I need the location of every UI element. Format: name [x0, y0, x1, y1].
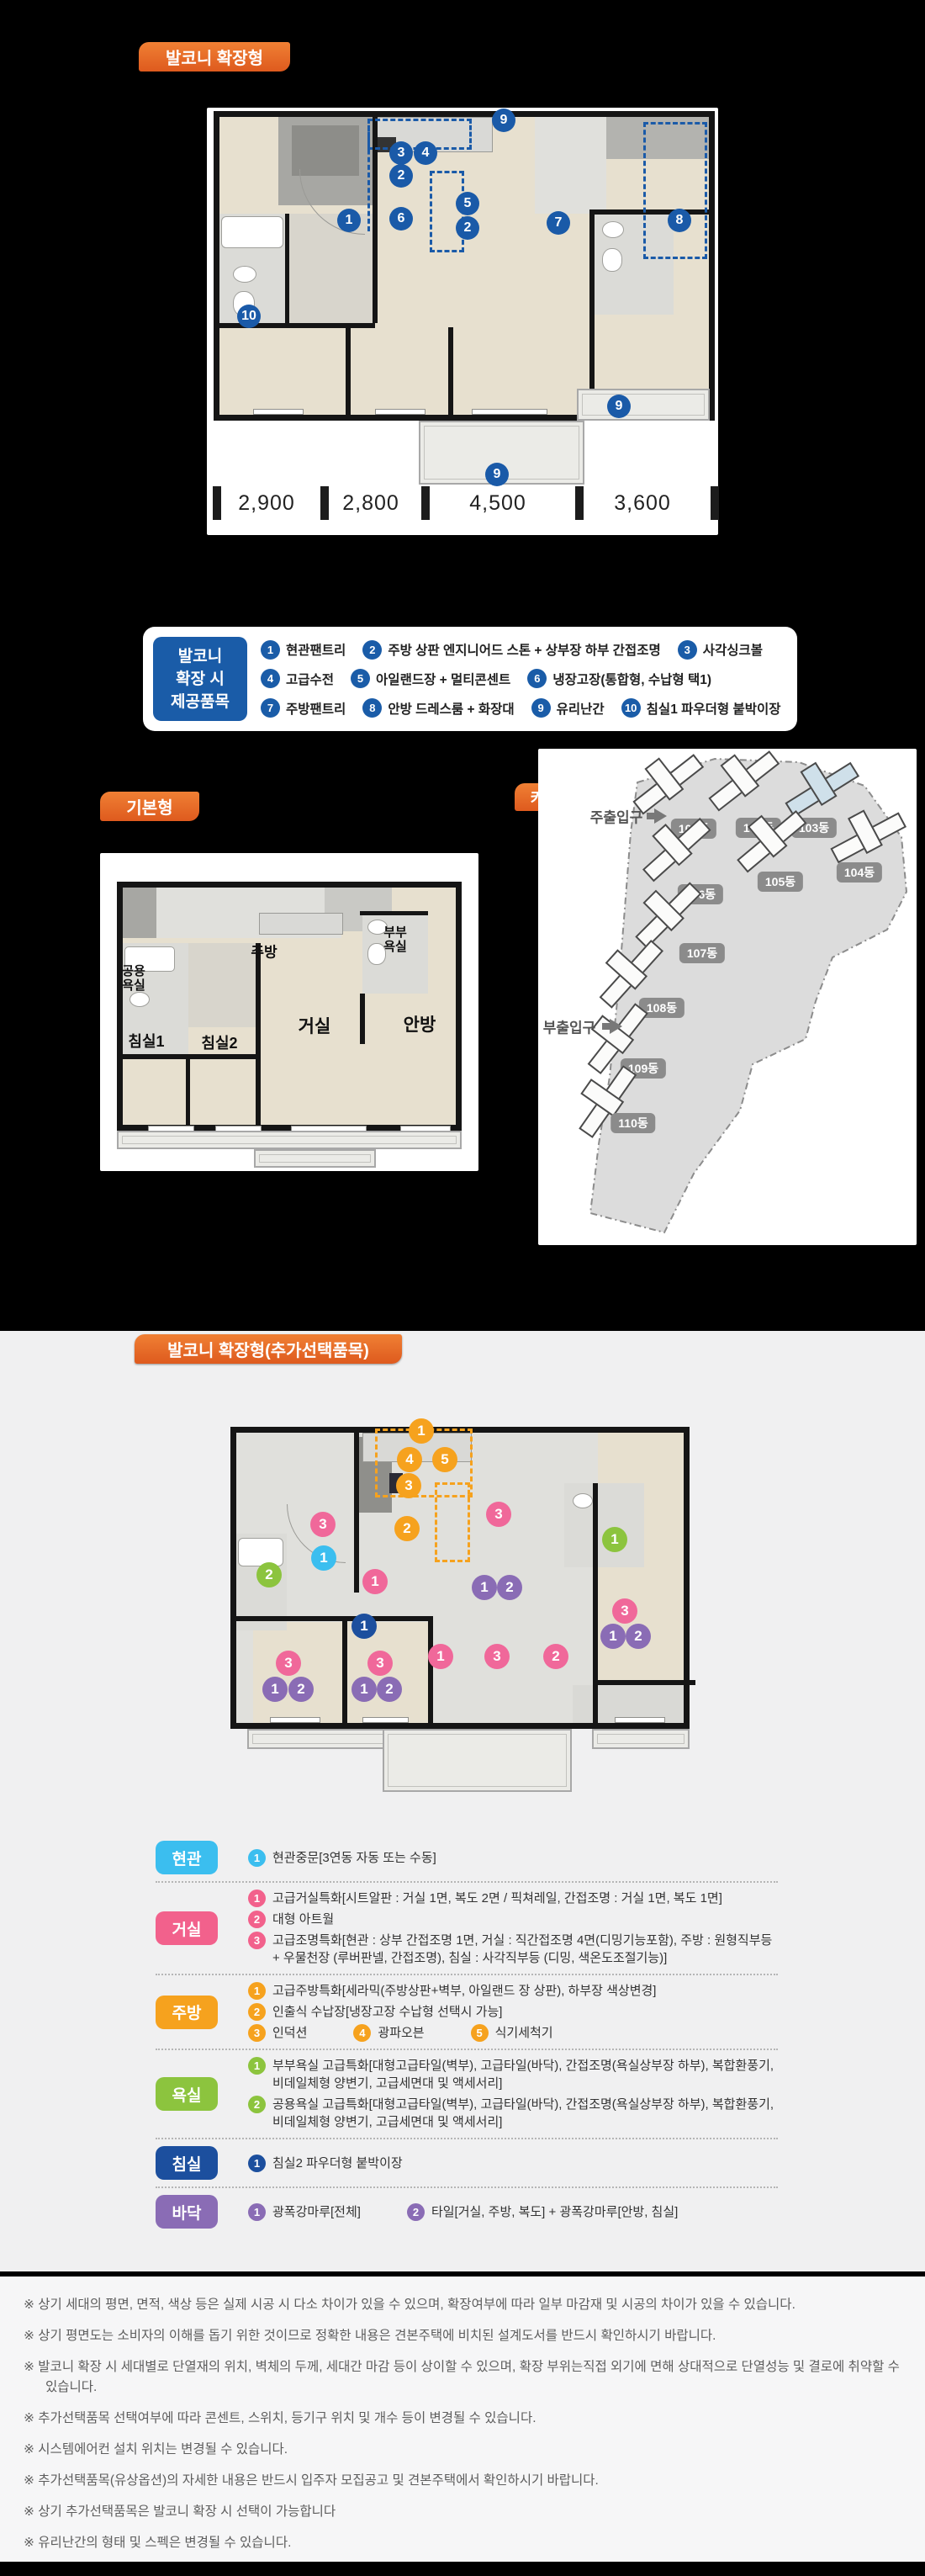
disclaimer-line: ※ 유리난간의 형태 및 스펙은 변경될 수 있습니다. — [24, 2533, 906, 2553]
item-number-icon: 1 — [248, 1890, 266, 1907]
room-label-line: 안방 — [404, 1015, 436, 1036]
provided-item: 6냉장고장(통합형, 수납형 택1) — [527, 669, 711, 688]
legend-item: 1침실2 파우더형 붙박이장 — [248, 2155, 403, 2172]
room-label-line: 침실2 — [201, 1035, 237, 1052]
plan1-outline — [214, 111, 715, 421]
wall — [360, 994, 365, 1044]
plan3-marker-3: 3 — [396, 1473, 421, 1498]
keymap-building-label: 105동 — [758, 872, 803, 892]
legend-item-label: 현관중문[3연동 자동 또는 수동] — [272, 1849, 436, 1867]
dimension-value: 3,600 — [614, 491, 671, 516]
dimension-tick — [711, 486, 719, 520]
provided-item: 9유리난간 — [531, 698, 605, 718]
room-label-line: 부부 — [383, 926, 407, 941]
provided-items-row: 1현관팬트리2주방 상판 엔지니어드 스톤 + 상부장 하부 간접조명3사각싱크… — [261, 640, 787, 660]
plan3-marker-5: 5 — [432, 1447, 457, 1472]
wall — [285, 214, 289, 323]
plan1-marker-4: 4 — [414, 141, 437, 165]
dimension-tick — [575, 486, 584, 520]
item-number-icon: 1 — [248, 2155, 266, 2172]
provided-item-label: 안방 드레스룸 + 화장대 — [388, 699, 514, 718]
provided-item: 8안방 드레스룸 + 화장대 — [362, 698, 514, 718]
badge-options-label: 발코니 확장형(추가선택품목) — [167, 1337, 369, 1361]
keymap-entrance-label: 부출입구 — [543, 1016, 596, 1037]
legend-category-badge: 현관 — [156, 1841, 218, 1874]
plan1-marker-8: 8 — [668, 209, 691, 232]
legend-items: 1현관중문[3연동 자동 또는 수동] — [248, 1849, 778, 1867]
sink-icon — [129, 992, 150, 1007]
plan1-marker-10: 10 — [237, 305, 261, 328]
plan3-marker-3: 3 — [612, 1598, 637, 1624]
plan1-marker-5: 5 — [456, 192, 479, 215]
plan3-marker-3: 3 — [276, 1651, 301, 1676]
room-label-line: 공용 — [122, 965, 145, 979]
plan1-marker-2: 2 — [389, 164, 413, 188]
plan3-marker-2: 2 — [543, 1644, 568, 1669]
disclaimer-line: ※ 추가선택품목 선택여부에 따라 콘센트, 스위치, 등기구 위치 및 개수 … — [24, 2409, 906, 2429]
provided-item-label: 냉장고장(통합형, 수납형 택1) — [552, 670, 711, 688]
item-number-icon: 2 — [248, 1911, 266, 1928]
floorplan-expanded: 93425216781099 2,9002,8004,5003,600 — [207, 108, 718, 535]
legend-item: 2타일[거실, 주방, 복도] + 광폭강마루[안방, 침실] — [407, 2203, 678, 2221]
legend-category-badge: 욕실 — [156, 2077, 218, 2111]
legend-item: 4광파오븐 — [353, 2024, 424, 2042]
corridor-tile — [535, 117, 606, 214]
bedroom1-floor — [253, 1622, 346, 1723]
wall — [236, 1616, 431, 1621]
item-number-icon: 5 — [471, 2024, 489, 2042]
wall — [346, 327, 351, 415]
legend-items: 1침실2 파우더형 붙박이장 — [248, 2155, 778, 2172]
expansion-line — [367, 119, 370, 231]
window — [253, 409, 304, 415]
plan3-marker-1: 1 — [262, 1677, 288, 1702]
keymap-building-label: 110동 — [610, 1113, 655, 1133]
room-label: 침실1 — [128, 1033, 164, 1050]
legend-item-label: 인덕션 — [272, 2024, 307, 2042]
provided-item: 2주방 상판 엔지니어드 스톤 + 상부장 하부 간접조명 — [362, 640, 660, 660]
item-number-icon: 5 — [351, 669, 370, 688]
legend-item-label: 고급거실특화[시트알판 : 거실 1면, 복도 2면 / 픽쳐레일, 간접조명 … — [272, 1890, 722, 1907]
legend-item: 3고급조명특화[현관 : 상부 간접조명 1면, 거실 : 직간접조명 4면(디… — [248, 1932, 778, 1967]
item-number-icon: 4 — [261, 669, 280, 688]
provided-items-title-line: 발코니 — [178, 645, 222, 668]
plan1-marker-9: 9 — [492, 109, 515, 132]
master-bedroom-floor — [598, 1559, 684, 1687]
disclaimer-line: ※ 상기 평면도는 소비자의 이해를 돕기 위한 것이므로 정확한 내용은 견본… — [24, 2326, 906, 2346]
badge-options: 발코니 확장형(추가선택품목) — [135, 1334, 402, 1364]
wall — [448, 327, 453, 415]
window — [472, 409, 547, 415]
floorplan-options: 14532121313333132112121212 — [230, 1427, 690, 1797]
item-number-icon: 6 — [527, 669, 547, 688]
legend-item-row: 1광폭강마루[전체]2타일[거실, 주방, 복도] + 광폭강마루[안방, 침실… — [248, 2203, 778, 2221]
toilet-icon — [602, 248, 622, 272]
legend-group-거실: 거실1고급거실특화[시트알판 : 거실 1면, 복도 2면 / 픽쳐레일, 간접… — [156, 1881, 778, 1974]
balcony-south — [383, 1729, 572, 1792]
legend-item-row: 3인덕션4광파오븐5식기세척기 — [248, 2024, 778, 2042]
legend-item-label: 광파오븐 — [378, 2024, 424, 2042]
plan3-marker-3: 3 — [367, 1651, 393, 1676]
badge-balcony-expanded: 발코니 확장형 — [139, 42, 290, 72]
plan3-marker-1: 1 — [409, 1418, 434, 1444]
option-zone-island — [435, 1482, 470, 1562]
legend-item-label: 타일[거실, 주방, 복도] + 광폭강마루[안방, 침실] — [431, 2203, 678, 2221]
legend-item: 5식기세척기 — [471, 2024, 553, 2042]
provided-items-row: 7주방팬트리8안방 드레스룸 + 화장대9유리난간10침실1 파우더형 붙박이장 — [261, 698, 787, 718]
badge-balcony-expanded-label: 발코니 확장형 — [166, 45, 263, 69]
wall — [186, 1054, 190, 1132]
legend-item: 1부부욕실 고급특화[대형고급타일(벽부), 고급타일(바닥), 간접조명(욕실… — [248, 2057, 778, 2092]
disclaimer-line: ※ 상기 추가선택품목은 발코니 확장 시 선택이 가능합니다 — [24, 2502, 906, 2522]
legend-group-현관: 현관1현관중문[3연동 자동 또는 수동] — [156, 1834, 778, 1881]
room-label-line: 욕실 — [122, 979, 145, 994]
item-number-icon: 7 — [261, 698, 280, 718]
legend-item-label: 광폭강마루[전체] — [272, 2203, 361, 2221]
window — [375, 409, 425, 415]
badge-basic: 기본형 — [100, 792, 199, 821]
plan3-marker-2: 2 — [377, 1677, 402, 1702]
item-number-icon: 10 — [621, 698, 641, 718]
bathtub-icon — [221, 216, 283, 248]
kitchen-counter — [259, 913, 343, 935]
arrow-right-icon — [610, 1019, 622, 1034]
keymap-box: 101동102동103동104동105동106동107동108동109동110동… — [538, 749, 917, 1245]
dimension-tick — [421, 486, 430, 520]
legend-group-주방: 주방1고급주방특화[세라믹(주방상판+벽부, 아일랜드 장 상판), 하부장 색… — [156, 1974, 778, 2049]
legend-item-row: 2대형 아트월 — [248, 1911, 778, 1928]
provided-items-title: 발코니확장 시제공품목 — [153, 637, 247, 721]
plan3-marker-2: 2 — [497, 1575, 522, 1600]
plan1-marker-2: 2 — [456, 216, 479, 240]
plan3-marker-4: 4 — [397, 1447, 422, 1472]
dimension-tick — [320, 486, 329, 520]
sink-icon — [573, 1493, 593, 1508]
floorplan-basic: 공용욕실주방부부욕실침실1침실2거실안방 — [100, 853, 478, 1171]
provided-item-label: 사각싱크볼 — [703, 640, 763, 659]
plan3-marker-1: 1 — [311, 1545, 336, 1571]
provided-item: 3사각싱크볼 — [678, 640, 763, 660]
item-number-icon: 8 — [362, 698, 382, 718]
plan1-marker-6: 6 — [389, 207, 413, 231]
item-number-icon: 1 — [261, 640, 280, 660]
legend-items: 1광폭강마루[전체]2타일[거실, 주방, 복도] + 광폭강마루[안방, 침실… — [248, 2203, 778, 2221]
provided-items-list: 1현관팬트리2주방 상판 엔지니어드 스톤 + 상부장 하부 간접조명3사각싱크… — [261, 635, 787, 723]
provided-items-title-line: 확장 시 — [176, 668, 225, 691]
item-number-icon: 3 — [678, 640, 697, 660]
disclaimer-line: ※ 발코니 확장 시 세대별로 단열재의 위치, 벽체의 두께, 세대간 마감 … — [24, 2357, 906, 2398]
balcony-strip — [117, 1131, 462, 1149]
provided-item-label: 현관팬트리 — [286, 640, 346, 659]
legend-category-badge: 거실 — [156, 1911, 218, 1945]
legend-category-badge: 주방 — [156, 1996, 218, 2029]
item-number-icon: 9 — [531, 698, 551, 718]
keymap-building-label: 107동 — [679, 943, 725, 963]
legend-item-label: 공용욕실 고급특화[대형고급타일(벽부), 고급타일(바닥), 간접조명(욕실상… — [272, 2096, 778, 2131]
plan1-marker-9: 9 — [607, 395, 631, 418]
legend-item: 1현관중문[3연동 자동 또는 수동] — [248, 1849, 436, 1867]
window — [615, 1717, 665, 1723]
item-number-icon: 2 — [248, 2096, 266, 2113]
plan3-marker-1: 1 — [351, 1614, 377, 1639]
legend-group-침실: 침실1침실2 파우더형 붙박이장 — [156, 2138, 778, 2186]
legend-item-label: 침실2 파우더형 붙박이장 — [272, 2155, 403, 2172]
item-number-icon: 1 — [248, 2203, 266, 2221]
room-label: 안방 — [404, 1015, 436, 1036]
balcony-strip — [592, 1729, 690, 1749]
wall — [593, 1680, 695, 1685]
balcony-east — [577, 389, 710, 421]
legend-item-label: 부부욕실 고급특화[대형고급타일(벽부), 고급타일(바닥), 간접조명(욕실상… — [272, 2057, 778, 2092]
wall — [354, 1433, 359, 1593]
provided-item-label: 침실1 파우더형 붙박이장 — [647, 699, 781, 718]
wall — [123, 1054, 257, 1059]
provided-items-title-line: 제공품목 — [171, 691, 230, 713]
disclaimer-line: ※ 추가선택품목(유상옵션)의 자세한 내용은 반드시 입주자 모집공고 및 견… — [24, 2471, 906, 2491]
plan1-marker-3: 3 — [389, 141, 413, 165]
item-number-icon: 2 — [407, 2203, 425, 2221]
legend-category-badge: 침실 — [156, 2146, 218, 2180]
sink-icon — [602, 221, 624, 238]
utility-block-inner — [292, 125, 359, 176]
legend-item-label: 대형 아트월 — [272, 1911, 334, 1928]
plan2-outline — [117, 882, 462, 1131]
item-number-icon: 1 — [248, 1849, 266, 1867]
wall — [589, 209, 595, 415]
legend-item-row: 2인출식 수납장[냉장고장 수납형 선택시 가능] — [248, 2003, 778, 2021]
plan3-marker-2: 2 — [394, 1516, 420, 1541]
page: 발코니 확장형 — [0, 0, 925, 2576]
window — [270, 1717, 320, 1723]
disclaimer-line: ※ 상기 세대의 평면, 면적, 색상 등은 실제 시공 시 다소 차이가 있을… — [24, 2295, 906, 2315]
item-number-icon: 4 — [353, 2024, 371, 2042]
wall — [360, 911, 428, 915]
legend-item: 3인덕션 — [248, 2024, 307, 2042]
keymap-entrance-label: 주출입구 — [590, 806, 643, 827]
plan1-marker-1: 1 — [337, 209, 361, 232]
legend-item-row: 3고급조명특화[현관 : 상부 간접조명 1면, 거실 : 직간접조명 4면(디… — [248, 1932, 778, 1967]
legend-items: 1부부욕실 고급특화[대형고급타일(벽부), 고급타일(바닥), 간접조명(욕실… — [248, 2057, 778, 2131]
legend-item: 2대형 아트월 — [248, 1911, 334, 1928]
plan3-marker-1: 1 — [472, 1575, 497, 1600]
provided-item-label: 고급수전 — [286, 670, 334, 688]
sink-icon — [233, 266, 256, 283]
plan3-marker-3: 3 — [310, 1512, 336, 1537]
room-label: 부부욕실 — [383, 926, 407, 955]
legend-item-row: 1침실2 파우더형 붙박이장 — [248, 2155, 778, 2172]
window — [362, 1717, 409, 1723]
balcony-south — [254, 1149, 376, 1168]
provided-item: 1현관팬트리 — [261, 640, 346, 660]
legend-item-row: 1현관중문[3연동 자동 또는 수동] — [248, 1849, 778, 1867]
plan1-marker-9: 9 — [485, 463, 509, 486]
plan3-marker-3: 3 — [484, 1644, 510, 1669]
plan3-marker-2: 2 — [256, 1562, 282, 1587]
room-label-line: 욕실 — [383, 941, 407, 955]
expansion-zone-dressroom — [643, 122, 707, 259]
utility-block — [123, 888, 156, 938]
room-label-line: 거실 — [299, 1017, 331, 1037]
legend-item-row: 1고급거실특화[시트알판 : 거실 1면, 복도 2면 / 픽쳐레일, 간접조명… — [248, 1890, 778, 1907]
item-number-icon: 3 — [248, 2024, 266, 2042]
arrow-right-icon — [654, 808, 667, 824]
room-label: 침실2 — [201, 1035, 237, 1052]
room-label-line: 침실1 — [128, 1033, 164, 1050]
dimension-value: 2,900 — [238, 491, 295, 516]
plan3-marker-2: 2 — [288, 1677, 314, 1702]
plan3-marker-1: 1 — [600, 1624, 626, 1649]
plan3-marker-3: 3 — [486, 1502, 511, 1527]
provided-item-label: 주방팬트리 — [286, 699, 346, 718]
legend-group-바닥: 바닥1광폭강마루[전체]2타일[거실, 주방, 복도] + 광폭강마루[안방, … — [156, 2186, 778, 2235]
plan3-marker-1: 1 — [602, 1527, 627, 1552]
master-bathroom — [564, 1483, 644, 1567]
plan1-marker-7: 7 — [547, 211, 570, 235]
legend-items: 1고급거실특화[시트알판 : 거실 1면, 복도 2면 / 픽쳐레일, 간접조명… — [248, 1890, 778, 1967]
badge-basic-label: 기본형 — [126, 794, 172, 819]
disclaimer-line: ※ 시스템에어컨 설치 위치는 변경될 수 있습니다. — [24, 2440, 906, 2460]
plan3-marker-1: 1 — [351, 1677, 377, 1702]
provided-item: 10침실1 파우더형 붙박이장 — [621, 698, 781, 718]
item-number-icon: 2 — [248, 2003, 266, 2021]
legend-items: 1고급주방특화[세라믹(주방상판+벽부, 아일랜드 장 상판), 하부장 색상변… — [248, 1982, 778, 2042]
plan3-marker-2: 2 — [626, 1624, 651, 1649]
legend-item-label: 인출식 수납장[냉장고장 수납형 선택시 가능] — [272, 2003, 502, 2021]
plan3-marker-1: 1 — [362, 1569, 388, 1594]
room-label-line: 주방 — [251, 944, 277, 960]
legend-group-욕실: 욕실1부부욕실 고급특화[대형고급타일(벽부), 고급타일(바닥), 간접조명(… — [156, 2049, 778, 2138]
wall — [256, 943, 261, 1132]
item-number-icon: 1 — [248, 2057, 266, 2075]
legend-item-row: 1부부욕실 고급특화[대형고급타일(벽부), 고급타일(바닥), 간접조명(욕실… — [248, 2057, 778, 2092]
item-number-icon: 2 — [362, 640, 382, 660]
item-number-icon: 1 — [248, 1982, 266, 2000]
bathtub-icon — [238, 1538, 283, 1566]
legend-category-badge: 바닥 — [156, 2195, 218, 2229]
legend-item: 1광폭강마루[전체] — [248, 2203, 361, 2221]
legend-item: 2인출식 수납장[냉장고장 수납형 선택시 가능] — [248, 2003, 502, 2021]
legend-item-row: 1고급주방특화[세라믹(주방상판+벽부, 아일랜드 장 상판), 하부장 색상변… — [248, 1982, 778, 2000]
legend-item: 1고급주방특화[세라믹(주방상판+벽부, 아일랜드 장 상판), 하부장 색상변… — [248, 1982, 656, 2000]
room-label: 거실 — [299, 1017, 331, 1037]
provided-item: 4고급수전 — [261, 669, 334, 688]
provided-item-label: 유리난간 — [557, 699, 605, 718]
dimension-value: 2,800 — [342, 491, 399, 516]
dimension-tick — [213, 486, 221, 520]
room-label: 공용욕실 — [122, 965, 145, 994]
provided-items-row: 4고급수전5아일랜드장 + 멀티콘센트6냉장고장(통합형, 수납형 택1) — [261, 669, 787, 688]
provided-item: 5아일랜드장 + 멀티콘센트 — [351, 669, 510, 688]
legend-item-label: 고급주방특화[세라믹(주방상판+벽부, 아일랜드 장 상판), 하부장 색상변경… — [272, 1982, 656, 2000]
legend-item: 2공용욕실 고급특화[대형고급타일(벽부), 고급타일(바닥), 간접조명(욕실… — [248, 2096, 778, 2131]
provided-items-box: 발코니확장 시제공품목 1현관팬트리2주방 상판 엔지니어드 스톤 + 상부장 … — [143, 627, 797, 731]
wall — [593, 1483, 598, 1723]
provided-item: 7주방팬트리 — [261, 698, 346, 718]
disclaimer-list: ※ 상기 세대의 평면, 면적, 색상 등은 실제 시공 시 다소 차이가 있을… — [24, 2295, 906, 2564]
dimension-value: 4,500 — [469, 491, 526, 516]
provided-item-label: 주방 상판 엔지니어드 스톤 + 상부장 하부 간접조명 — [388, 640, 660, 659]
wall — [342, 1621, 347, 1723]
legend-item-label: 식기세척기 — [495, 2024, 553, 2042]
entry-hall — [188, 943, 256, 1027]
keymap-building-label: 104동 — [837, 862, 882, 883]
room-label: 주방 — [251, 944, 277, 960]
provided-item-label: 아일랜드장 + 멀티콘센트 — [376, 670, 510, 688]
options-legend: 현관1현관중문[3연동 자동 또는 수동]거실1고급거실특화[시트알판 : 거실… — [156, 1834, 778, 2235]
legend-item-row: 2공용욕실 고급특화[대형고급타일(벽부), 고급타일(바닥), 간접조명(욕실… — [248, 2096, 778, 2131]
wall — [428, 1616, 433, 1723]
plan3-marker-1: 1 — [428, 1644, 453, 1669]
item-number-icon: 3 — [248, 1932, 266, 1949]
legend-item-label: 고급조명특화[현관 : 상부 간접조명 1면, 거실 : 직간접조명 4면(디밍… — [272, 1932, 778, 1967]
legend-item: 1고급거실특화[시트알판 : 거실 1면, 복도 2면 / 픽쳐레일, 간접조명… — [248, 1890, 722, 1907]
